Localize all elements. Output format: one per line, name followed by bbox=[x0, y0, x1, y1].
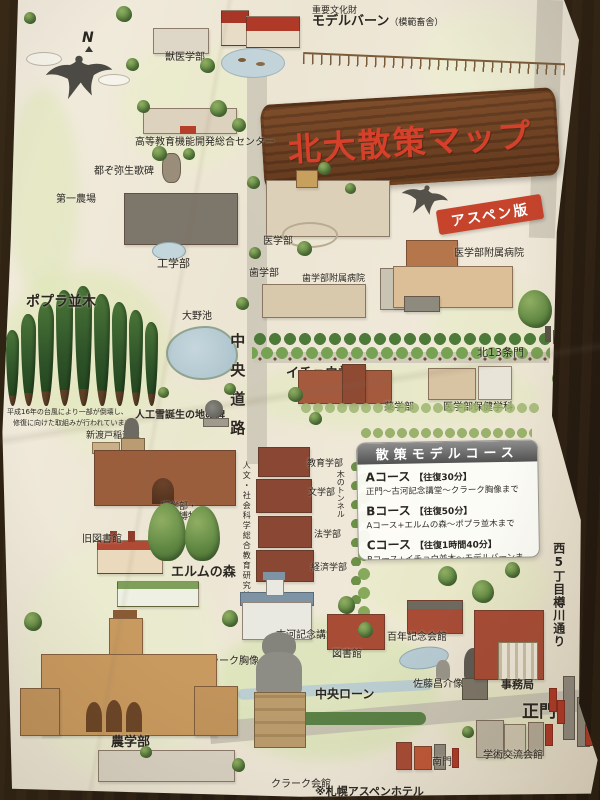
tree-icon bbox=[232, 758, 245, 772]
tree-icon bbox=[236, 297, 249, 310]
monument-base bbox=[203, 418, 229, 427]
health-sciences-tower bbox=[478, 366, 512, 400]
admin-office-label: 事務局 bbox=[501, 679, 534, 692]
south-gate-building bbox=[396, 742, 412, 770]
tree-icon bbox=[158, 387, 169, 398]
nitobe-statue bbox=[124, 418, 139, 440]
tree-icon bbox=[126, 58, 139, 71]
map-paper: N 重要文化財 モデルバーン（模範畜舎） 獣医学部 北大散策マップ アスペン版 … bbox=[0, 0, 600, 800]
agriculture-arch bbox=[106, 700, 122, 732]
poplar-icon bbox=[6, 330, 19, 406]
tree-icon bbox=[288, 387, 303, 402]
tree-icon bbox=[140, 746, 152, 758]
academic-exchange-label: 学術交流会館 bbox=[483, 750, 543, 762]
elm-forest-building bbox=[117, 581, 199, 607]
cow-icon bbox=[256, 62, 265, 66]
tree-icon bbox=[224, 383, 236, 395]
tree-icon bbox=[358, 622, 373, 638]
poplar-icon bbox=[145, 322, 158, 406]
centennial-hall-label: 百年記念会館 bbox=[387, 632, 447, 644]
field-wash bbox=[8, 88, 78, 298]
footer-note: ※札幌アスペンホテル bbox=[315, 786, 424, 799]
course-a-time: 【往復30分】 bbox=[414, 473, 472, 484]
tree-icon bbox=[462, 726, 474, 738]
hedge bbox=[286, 712, 426, 725]
tree-icon bbox=[472, 580, 494, 603]
west5-street-label: 西5丁目樽川通り bbox=[551, 542, 565, 652]
engineering-building bbox=[124, 193, 238, 245]
bush-row bbox=[360, 427, 532, 439]
tree-icon bbox=[318, 162, 331, 175]
miyako-monument-label: 都ぞ弥生歌碑 bbox=[94, 166, 154, 178]
sato-statue-pedestal bbox=[462, 678, 488, 700]
tree-icon bbox=[249, 247, 261, 259]
central-lawn-label: 中央ローン bbox=[315, 688, 374, 702]
tree-icon bbox=[518, 290, 552, 328]
compass-north-label: N bbox=[82, 30, 94, 46]
university-hospital-label: 医学部附属病院 bbox=[454, 248, 524, 260]
south-gate-label: 南門 bbox=[432, 757, 452, 769]
kita13-gate-post bbox=[553, 330, 559, 344]
course-b-name: Bコース bbox=[366, 504, 411, 519]
vet-school-label: 獣医学部 bbox=[165, 52, 205, 64]
course-b-time: 【往復50分】 bbox=[415, 507, 473, 518]
artificial-snow-monument bbox=[205, 400, 223, 418]
dental-hospital-label: 歯学部附属病院 bbox=[302, 274, 365, 284]
tree-icon bbox=[558, 430, 571, 443]
tree-icon bbox=[438, 566, 457, 586]
course-c-time: 【往復1時間40分】 bbox=[415, 540, 497, 551]
engineering-label: 工学部 bbox=[157, 258, 190, 271]
medicine-tower bbox=[296, 170, 318, 188]
old-library-spire bbox=[128, 531, 135, 542]
crow-icon bbox=[42, 48, 116, 106]
course-c-name: Cコース bbox=[367, 538, 411, 553]
kita13-gate-post bbox=[545, 326, 551, 342]
storm-note-line1: 平成16年の台風により一部が倒壊し、 bbox=[7, 408, 128, 416]
library-building bbox=[327, 614, 385, 650]
tree-icon bbox=[137, 100, 150, 113]
dental-hospital-building bbox=[262, 284, 366, 318]
red-sign bbox=[180, 126, 196, 134]
museum-arch bbox=[152, 478, 174, 504]
tree-icon bbox=[552, 369, 569, 387]
course-a-row: Aコース【往復30分】 正門〜古河記念講堂〜クラーク胸像まで bbox=[357, 461, 538, 498]
model-barn-building bbox=[246, 16, 300, 48]
agriculture-arch bbox=[126, 702, 142, 732]
course-b-row: Bコース【往復50分】 Aコース+エルムの森〜ポプラ並木まで bbox=[358, 495, 539, 532]
vet-school-building bbox=[153, 28, 209, 54]
poplar-avenue-label: ポプラ並木 bbox=[26, 294, 96, 310]
education-building bbox=[258, 447, 310, 477]
barn-pond bbox=[221, 48, 285, 78]
centennial-hall-building bbox=[407, 600, 463, 634]
letters-label: 文学部 bbox=[308, 488, 335, 498]
tree-icon bbox=[309, 412, 322, 425]
tree-icon bbox=[24, 12, 36, 24]
poplar-icon bbox=[94, 294, 110, 406]
sato-statue-label: 佐藤昌介像 bbox=[413, 679, 463, 691]
agriculture-west-wing bbox=[20, 688, 60, 736]
hospital-annex bbox=[404, 296, 440, 312]
dentistry-label: 歯学部 bbox=[249, 268, 279, 280]
gate-banner-flag bbox=[585, 724, 593, 746]
tree-icon bbox=[345, 183, 356, 194]
central-road-label: 中央道路 bbox=[228, 333, 245, 467]
old-library-label: 旧図書館 bbox=[82, 534, 122, 546]
tree-icon bbox=[232, 118, 246, 132]
agriculture-arch bbox=[86, 702, 102, 732]
model-barn-name: モデルバーン bbox=[312, 14, 389, 29]
gate-banner-flag bbox=[545, 724, 553, 746]
edition-banner: アスペン版 bbox=[436, 194, 545, 235]
course-panel: 散策モデルコース Aコース【往復30分】 正門〜古河記念講堂〜クラーク胸像まで … bbox=[356, 439, 540, 560]
furukawa-tower-roof bbox=[263, 572, 285, 580]
poplar-icon bbox=[38, 302, 54, 406]
tree-icon bbox=[222, 610, 238, 627]
gate-banner-flag bbox=[557, 700, 565, 724]
gate-banner-flag bbox=[549, 688, 557, 712]
tree-icon bbox=[297, 241, 312, 256]
poplar-icon bbox=[112, 302, 127, 406]
tree-icon bbox=[200, 58, 215, 73]
garden-statue bbox=[436, 660, 450, 680]
education-label: 教育学部 bbox=[307, 459, 343, 469]
clark-bust-shoulders bbox=[256, 652, 302, 694]
health-sciences-building bbox=[428, 368, 476, 400]
course-a-name: Aコース bbox=[365, 470, 410, 485]
model-barn-label: モデルバーン（模範畜舎） bbox=[312, 15, 443, 30]
poplar-icon bbox=[129, 310, 143, 406]
admin-portico bbox=[498, 642, 538, 680]
storm-note-line2: 修復に向けた取組みが行われています。 bbox=[13, 419, 138, 427]
bush-row bbox=[300, 402, 540, 415]
law-building bbox=[258, 516, 312, 548]
agriculture-east-wing bbox=[194, 686, 238, 736]
tree-icon bbox=[505, 562, 520, 578]
map-photo: N 重要文化財 モデルバーン（模範畜舎） 獣医学部 北大散策マップ アスペン版 … bbox=[0, 0, 600, 800]
tree-icon bbox=[247, 176, 260, 189]
first-farm-label: 第一農場 bbox=[56, 194, 96, 206]
tree-icon bbox=[583, 636, 596, 649]
furukawa-tower bbox=[266, 578, 284, 596]
economics-label: 経済学部 bbox=[311, 563, 347, 573]
elm-forest-label: エルムの森 bbox=[171, 566, 236, 581]
tree-icon bbox=[116, 6, 132, 22]
clark-bust-pedestal bbox=[254, 692, 306, 748]
library-label: 図書館 bbox=[332, 649, 362, 661]
poplar-icon bbox=[21, 314, 36, 406]
clark-hall-building bbox=[98, 750, 235, 782]
tree-icon bbox=[183, 148, 195, 160]
ohno-pond-label: 大野池 bbox=[182, 311, 212, 323]
cow-icon bbox=[238, 58, 246, 62]
law-label: 法学部 bbox=[314, 530, 341, 540]
humanities-building-label: 人文・社会科学総合教育研究棟 bbox=[242, 461, 251, 611]
course-c-row: Cコース【往復1時間40分】 Bコース+イチョウ並木〜モデルバーンまで bbox=[359, 529, 540, 560]
pharmacy-tower bbox=[342, 364, 366, 404]
tree-tunnel-label: 木のトンネル bbox=[336, 470, 345, 522]
gate-banner-flag bbox=[452, 748, 459, 768]
barn-house bbox=[221, 10, 249, 46]
medicine-label: 医学部 bbox=[263, 236, 293, 248]
tree-icon bbox=[338, 596, 355, 614]
tree-icon bbox=[152, 146, 167, 161]
elm-tree-icon bbox=[185, 506, 220, 561]
tree-icon bbox=[24, 612, 42, 631]
tree-icon bbox=[210, 100, 227, 117]
letters-building bbox=[256, 479, 312, 513]
kita13-gate-label: 北13条門 bbox=[477, 347, 524, 360]
model-barn-sub: （模範畜舎） bbox=[389, 18, 443, 28]
south-gate-building bbox=[414, 746, 432, 770]
